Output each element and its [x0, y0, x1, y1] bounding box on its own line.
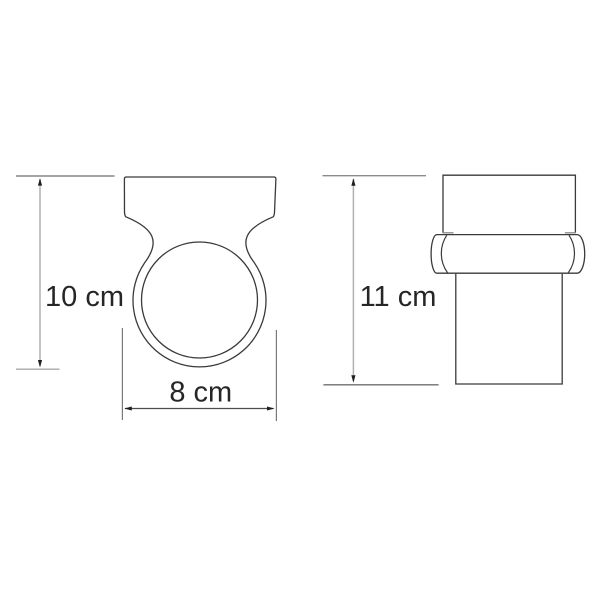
svg-text:8 cm: 8 cm — [169, 377, 232, 409]
svg-text:10 cm: 10 cm — [45, 281, 124, 313]
svg-text:11 cm: 11 cm — [360, 281, 437, 313]
